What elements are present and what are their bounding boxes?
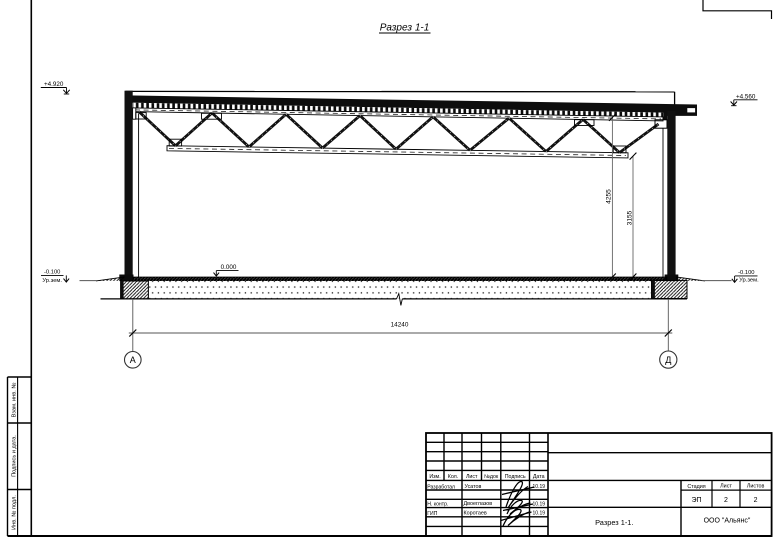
svg-text:Ур.зем.: Ур.зем. <box>42 278 62 284</box>
svg-text:Лист: Лист <box>466 474 478 480</box>
svg-text:3155: 3155 <box>627 210 634 225</box>
svg-text:Подпись и дата.: Подпись и дата. <box>12 435 18 477</box>
svg-text:Н. контр.: Н. контр. <box>427 502 448 508</box>
svg-text:Лист: Лист <box>720 484 732 490</box>
svg-text:Разрез 1-1.: Разрез 1-1. <box>595 518 633 527</box>
svg-text:2: 2 <box>754 497 758 504</box>
svg-text:Стадия: Стадия <box>687 484 705 490</box>
svg-text:ЭП: ЭП <box>691 497 701 504</box>
svg-text:-0.100: -0.100 <box>44 270 60 276</box>
svg-text:А: А <box>130 355 136 365</box>
svg-text:Д: Д <box>665 355 671 365</box>
svg-text:Кол.: Кол. <box>448 474 458 480</box>
svg-text:Листов: Листов <box>747 484 765 490</box>
svg-text:4255: 4255 <box>605 189 612 204</box>
svg-text:Ур.зем.: Ур.зем. <box>739 278 759 284</box>
svg-text:Усатов: Усатов <box>465 484 482 490</box>
svg-text:+4.920: +4.920 <box>44 81 64 88</box>
svg-text:Изм.: Изм. <box>429 474 440 480</box>
svg-text:Разработал: Разработал <box>427 484 455 490</box>
svg-text:Подпись: Подпись <box>505 474 526 480</box>
svg-text:14240: 14240 <box>391 321 409 328</box>
svg-text:Коротаев: Коротаев <box>464 510 487 516</box>
svg-text:Двоеглазов: Двоеглазов <box>464 501 493 507</box>
svg-text:Взам. инв. №: Взам. инв. № <box>12 383 18 418</box>
svg-text:Дата: Дата <box>533 474 545 480</box>
svg-text:10.19: 10.19 <box>533 484 546 490</box>
svg-text:ГИП: ГИП <box>427 511 437 517</box>
svg-text:Инв. № подл.: Инв. № подл. <box>12 495 18 530</box>
svg-text:Разрез 1-1: Разрез 1-1 <box>380 23 430 34</box>
svg-text:10.19: 10.19 <box>533 501 546 507</box>
svg-text:-0.100: -0.100 <box>738 270 754 276</box>
svg-text:+4.560: +4.560 <box>736 93 756 100</box>
svg-text:ООО "Альянс": ООО "Альянс" <box>704 518 751 525</box>
svg-text:№док: №док <box>484 474 499 480</box>
svg-text:2: 2 <box>724 497 728 504</box>
svg-text:10.19: 10.19 <box>533 511 546 517</box>
